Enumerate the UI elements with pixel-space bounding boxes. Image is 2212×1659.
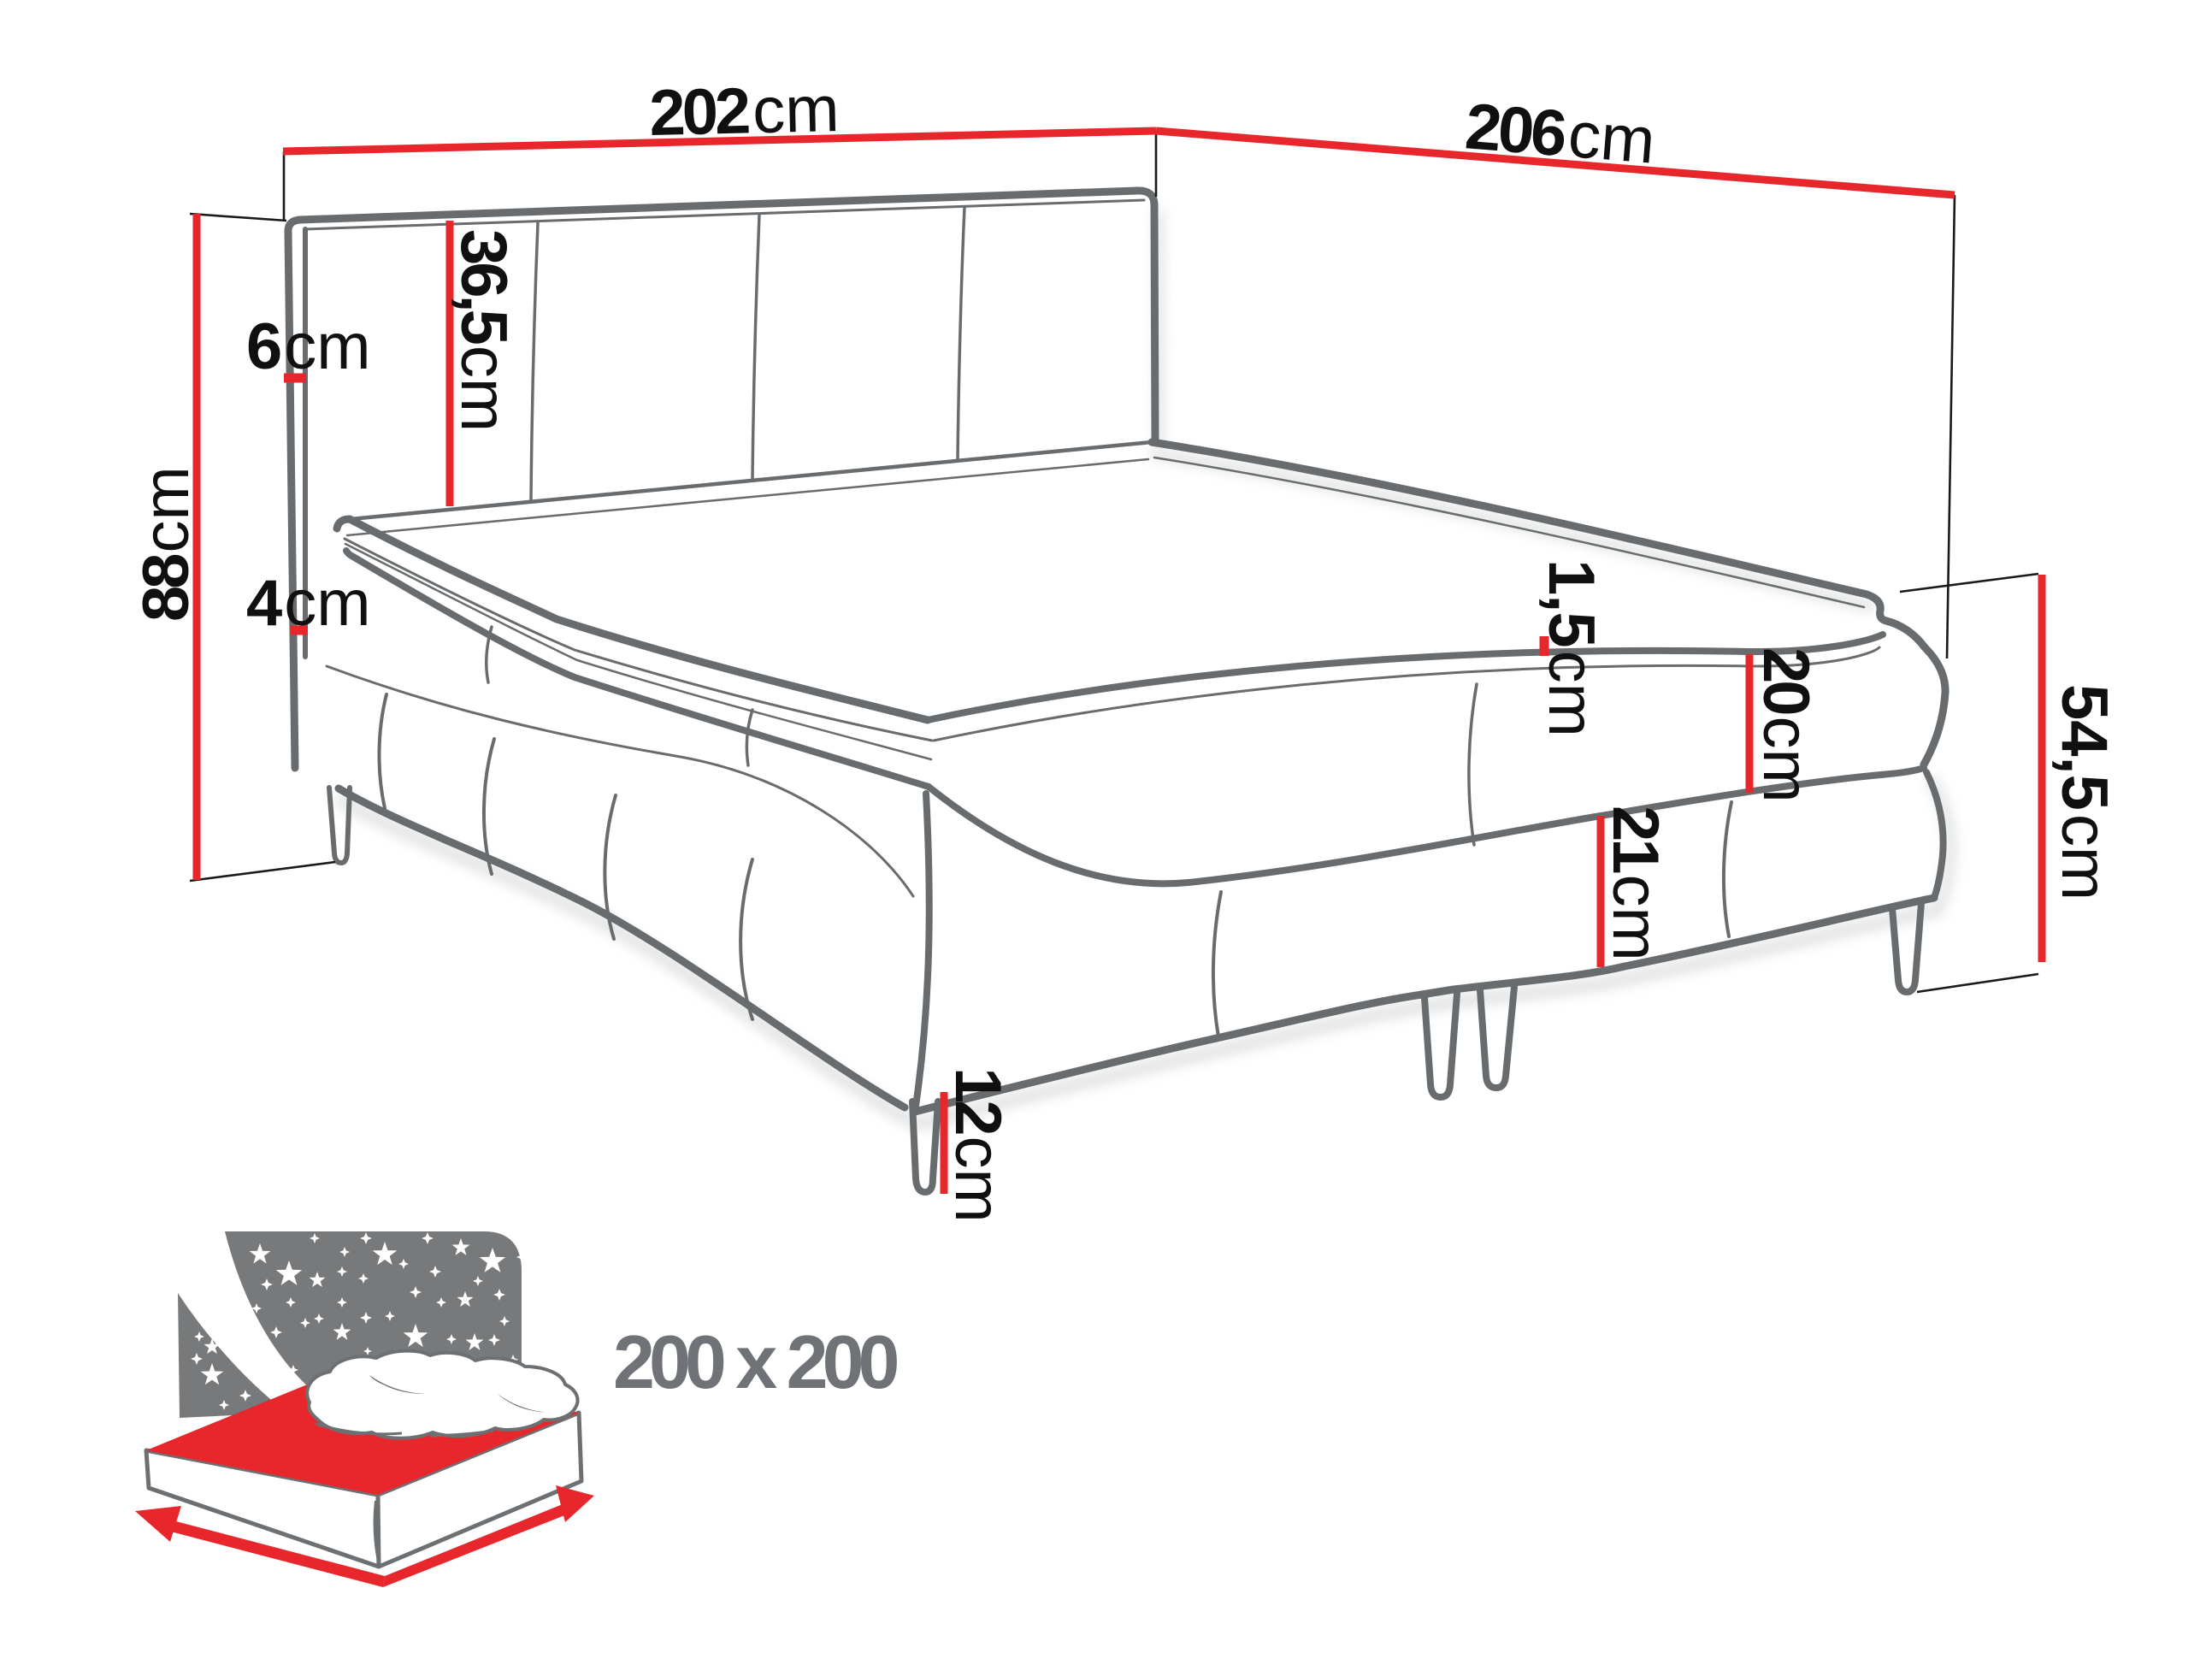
svg-text:202cm: 202cm [648,73,840,150]
svg-text:12cm: 12cm [941,1067,1014,1223]
svg-text:54,5cm: 54,5cm [2048,684,2121,900]
svg-text:88cm: 88cm [130,466,203,622]
svg-text:6cm: 6cm [246,310,371,383]
svg-text:36,5cm: 36,5cm [447,229,520,432]
svg-text:206cm: 206cm [1463,90,1658,178]
svg-text:21cm: 21cm [1599,806,1672,961]
svg-text:200 x 200: 200 x 200 [613,1320,898,1404]
svg-text:4cm: 4cm [246,567,371,640]
svg-text:20cm: 20cm [1749,647,1822,803]
